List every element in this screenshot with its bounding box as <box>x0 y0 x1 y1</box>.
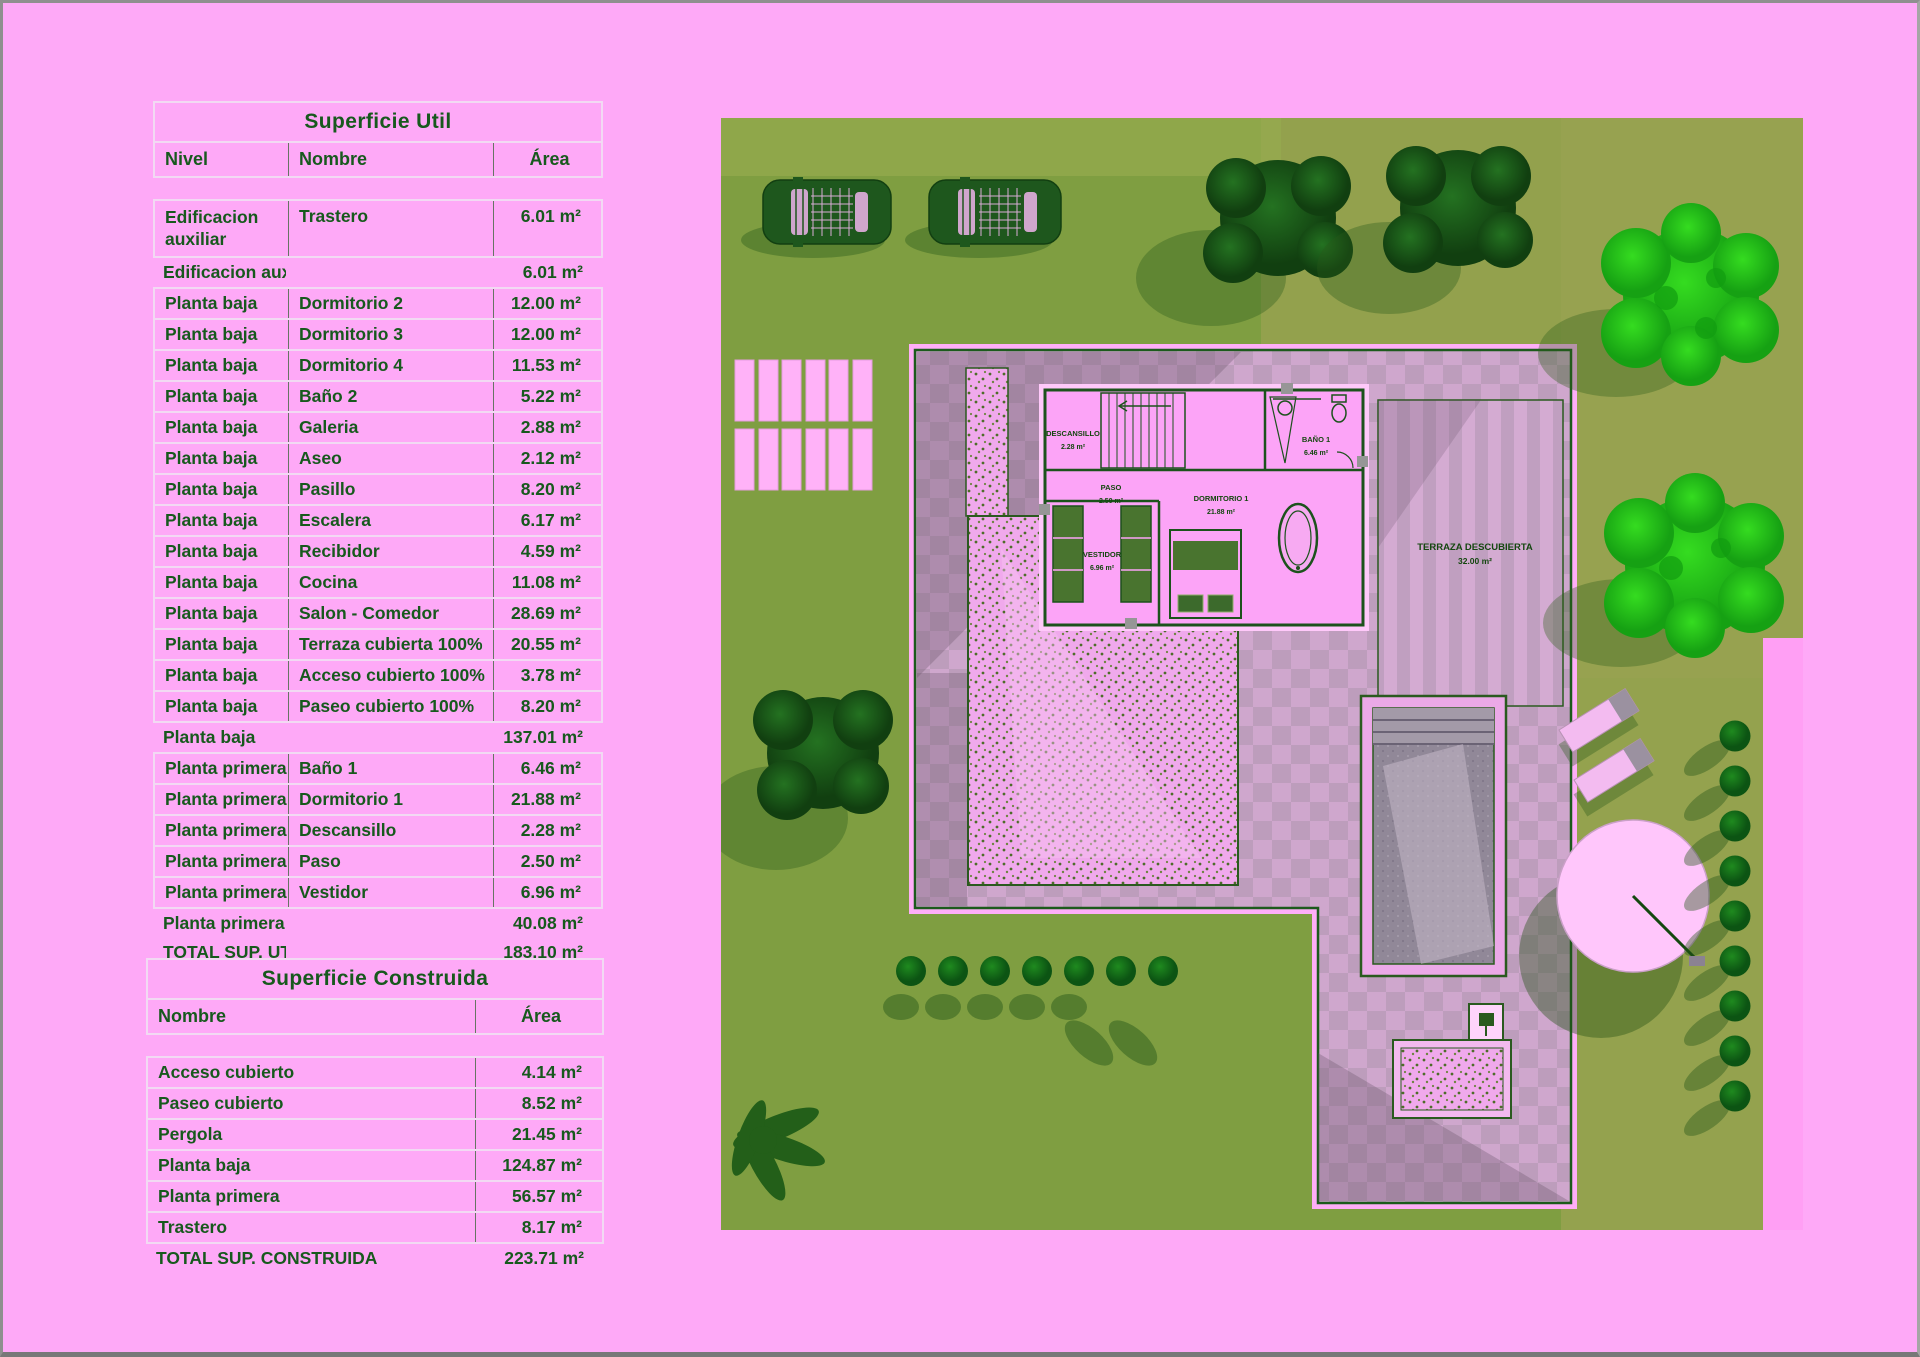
superficie-construida-title: Superficie Construida <box>146 958 604 1000</box>
room-area-descansillo: 2.28 m² <box>1061 444 1086 451</box>
superficie_util-row: Planta bajaTerraza cubierta 100%20.55 m² <box>155 628 601 659</box>
superficie_construida-row: Pergola21.45 m² <box>148 1118 602 1149</box>
cell-area: 12.00 m² <box>493 320 601 349</box>
cell-nivel: Planta baja <box>155 475 288 504</box>
room-area-dormitorio-1: 21.88 m² <box>1207 509 1236 516</box>
cell-area: 20.55 m² <box>493 630 601 659</box>
car-2 <box>929 177 1061 247</box>
col-header-nivel: Nivel <box>155 149 288 170</box>
superficie_construida-row: TOTAL SUP. CONSTRUIDA223.71 m² <box>146 1244 604 1273</box>
cell-nivel: Planta baja <box>155 351 288 380</box>
cell-area: 8.17 m² <box>475 1213 602 1242</box>
cell-nombre: Trastero <box>288 201 493 256</box>
cell-nombre: Acceso cubierto 100% <box>288 661 493 690</box>
cell-nombre: Trastero <box>148 1213 475 1242</box>
cell-area: 6.46 m² <box>493 754 601 783</box>
cell-nivel: Edificacion auxiliar <box>153 258 286 287</box>
cell-nombre: Dormitorio 4 <box>288 351 493 380</box>
superficie_construida-row: Planta baja124.87 m² <box>148 1149 602 1180</box>
cell-area: 8.52 m² <box>475 1089 602 1118</box>
cell-nombre: Planta primera <box>148 1182 475 1211</box>
cell-area: 11.08 m² <box>493 568 601 597</box>
cell-area: 6.96 m² <box>493 878 601 907</box>
cell-area: 3.78 m² <box>493 661 601 690</box>
superficie-util-title: Superficie Util <box>153 101 603 143</box>
cell-nombre: Planta baja <box>148 1151 475 1180</box>
room-area-vestidor: 6.96 m² <box>1090 565 1115 572</box>
cell-nivel: Planta baja <box>155 661 288 690</box>
cell-area: 5.22 m² <box>493 382 601 411</box>
cell-nombre: Paseo cubierto <box>148 1089 475 1118</box>
floor-plan <box>1039 383 1369 631</box>
cell-area: 4.59 m² <box>493 537 601 566</box>
cell-nombre: Pergola <box>148 1120 475 1149</box>
superficie_util-row: Planta bajaAseo2.12 m² <box>155 442 601 473</box>
cell-nivel: Planta baja <box>155 630 288 659</box>
cell-area: 2.12 m² <box>493 444 601 473</box>
superficie-util-header: Nivel Nombre Área <box>153 143 603 178</box>
page: Superficie Util Nivel Nombre Área Edific… <box>0 0 1920 1357</box>
cell-nivel: Planta baja <box>155 320 288 349</box>
superficie_util-row: Planta primeraBaño 16.46 m² <box>155 754 601 783</box>
cell-nivel: Planta baja <box>155 568 288 597</box>
terraza-descubierta <box>1378 400 1563 706</box>
cell-nombre: Dormitorio 3 <box>288 320 493 349</box>
cell-area: 124.87 m² <box>475 1151 602 1180</box>
superficie-construida-body: Acceso cubierto4.14 m²Paseo cubierto8.52… <box>146 1056 604 1273</box>
cell-nombre <box>286 723 490 752</box>
cell-nivel: Planta baja <box>155 413 288 442</box>
cell-area: 2.88 m² <box>493 413 601 442</box>
cell-nombre: Paseo cubierto 100% <box>288 692 493 721</box>
cell-area: 40.08 m² <box>490 909 603 938</box>
superficie-construida-table: Superficie Construida Nombre Área Acceso… <box>146 958 604 1273</box>
site-plan: DESCANSILLO 2.28 m² PASO 2.50 m² DORMITO… <box>721 118 1803 1230</box>
superficie_util-row: Planta primeraPaso2.50 m² <box>155 845 601 876</box>
cell-nombre: Recibidor <box>288 537 493 566</box>
superficie_util-row: Planta bajaDormitorio 212.00 m² <box>155 289 601 318</box>
cell-nombre: Dormitorio 2 <box>288 289 493 318</box>
cell-nombre: Descansillo <box>288 816 493 845</box>
cell-area: 2.50 m² <box>493 847 601 876</box>
superficie_construida-row: Acceso cubierto4.14 m² <box>148 1058 602 1087</box>
superficie_util-row: Planta bajaBaño 25.22 m² <box>155 380 601 411</box>
superficie_util-row: Planta bajaPasillo8.20 m² <box>155 473 601 504</box>
room-area-bano-1: 6.46 m² <box>1304 450 1329 457</box>
cell-nombre: Pasillo <box>288 475 493 504</box>
cell-nombre <box>286 909 490 938</box>
room-area-paso: 2.50 m² <box>1099 498 1124 505</box>
superficie-construida-header: Nombre Área <box>146 1000 604 1035</box>
superficie-util-body: Edificacion auxiliarTrastero6.01 m²Edifi… <box>153 199 603 967</box>
cell-area: 4.14 m² <box>475 1058 602 1087</box>
superficie_util-row: Planta bajaPaseo cubierto 100%8.20 m² <box>155 690 601 721</box>
superficie-util-table: Superficie Util Nivel Nombre Área Edific… <box>153 101 603 967</box>
cell-area: 28.69 m² <box>493 599 601 628</box>
room-label-bano-1: BAÑO 1 <box>1302 435 1330 444</box>
cell-nombre: Cocina <box>288 568 493 597</box>
cell-nombre: Salon - Comedor <box>288 599 493 628</box>
cell-nivel: Planta primera <box>155 785 288 814</box>
cell-area: 8.20 m² <box>493 692 601 721</box>
cell-nombre: Baño 2 <box>288 382 493 411</box>
room-label-vestidor: VESTIDOR <box>1083 550 1122 559</box>
cell-area: 12.00 m² <box>493 289 601 318</box>
cell-nivel: Planta baja <box>155 506 288 535</box>
bathtub <box>1279 504 1317 572</box>
cell-nivel: Planta baja <box>155 444 288 473</box>
superficie_util-row: Planta bajaEscalera6.17 m² <box>155 504 601 535</box>
bed <box>1170 530 1241 618</box>
cell-area: 21.45 m² <box>475 1120 602 1149</box>
cell-area: 6.01 m² <box>490 258 603 287</box>
col-header-nombre: Nombre <box>288 143 493 176</box>
cell-nivel: Planta baja <box>153 723 286 752</box>
cell-nombre: Terraza cubierta 100% <box>288 630 493 659</box>
cell-nivel: Planta primera <box>155 816 288 845</box>
superficie_util-row: Planta primeraDormitorio 121.88 m² <box>155 783 601 814</box>
superficie_util-row: Planta bajaDormitorio 312.00 m² <box>155 318 601 349</box>
col-header-area: Área <box>493 143 601 176</box>
cell-area: 11.53 m² <box>493 351 601 380</box>
superficie_util-row: Planta bajaAcceso cubierto 100%3.78 m² <box>155 659 601 690</box>
cell-nombre <box>286 258 490 287</box>
cell-nivel: Planta baja <box>155 289 288 318</box>
cell-nombre: Baño 1 <box>288 754 493 783</box>
room-label-terraza-descubierta: TERRAZA DESCUBIERTA <box>1417 542 1533 553</box>
superficie_util-row: Planta bajaDormitorio 411.53 m² <box>155 349 601 380</box>
superficie_util-row: Planta bajaGaleria2.88 m² <box>155 411 601 442</box>
room-label-descansillo: DESCANSILLO <box>1046 429 1100 438</box>
room-label-paso: PASO <box>1101 483 1122 492</box>
cell-nivel: Planta primera <box>155 878 288 907</box>
cell-nivel: Planta primera <box>155 847 288 876</box>
cell-area: 2.28 m² <box>493 816 601 845</box>
superficie_util-row: Planta bajaSalon - Comedor28.69 m² <box>155 597 601 628</box>
superficie_util-row: Edificacion auxiliarTrastero6.01 m² <box>155 201 601 256</box>
utility-box <box>1469 1004 1503 1040</box>
cell-nombre: Acceso cubierto <box>148 1058 475 1087</box>
room-label-dormitorio-1: DORMITORIO 1 <box>1194 494 1249 503</box>
cell-nivel: Planta primera <box>155 754 288 783</box>
stairs <box>1101 393 1185 468</box>
swimming-pool <box>1361 696 1506 976</box>
cell-area: 6.17 m² <box>493 506 601 535</box>
cell-nivel: Planta baja <box>155 599 288 628</box>
col-header-area: Área <box>475 1000 602 1033</box>
superficie_util-row: Planta baja137.01 m² <box>153 723 603 752</box>
cell-area: 137.01 m² <box>490 723 603 752</box>
cell-nombre: Paso <box>288 847 493 876</box>
cell-nivel: Planta baja <box>155 537 288 566</box>
cell-area: 6.01 m² <box>493 201 601 256</box>
room-area-terraza-descubierta: 32.00 m² <box>1458 556 1492 566</box>
superficie_construida-row: Trastero8.17 m² <box>148 1211 602 1242</box>
cell-nombre: Aseo <box>288 444 493 473</box>
cell-nombre: Dormitorio 1 <box>288 785 493 814</box>
cell-area: 223.71 m² <box>473 1244 604 1273</box>
superficie_util-row: Planta bajaRecibidor4.59 m² <box>155 535 601 566</box>
cell-area: 56.57 m² <box>475 1182 602 1211</box>
cell-nombre: Galeria <box>288 413 493 442</box>
cell-nombre: Vestidor <box>288 878 493 907</box>
superficie_util-row: Planta primera40.08 m² <box>153 909 603 938</box>
superficie_construida-row: Planta primera56.57 m² <box>148 1180 602 1211</box>
superficie_util-row: Planta primeraVestidor6.96 m² <box>155 876 601 907</box>
cell-nombre: TOTAL SUP. CONSTRUIDA <box>146 1244 473 1273</box>
cell-nivel: Planta primera <box>153 909 286 938</box>
superficie_util-row: Planta bajaCocina11.08 m² <box>155 566 601 597</box>
cell-area: 21.88 m² <box>493 785 601 814</box>
superficie_util-row: Planta primeraDescansillo2.28 m² <box>155 814 601 845</box>
cell-nivel: Edificacion auxiliar <box>155 201 288 256</box>
cell-nivel: Planta baja <box>155 382 288 411</box>
superficie_util-row: Edificacion auxiliar6.01 m² <box>153 258 603 287</box>
gravel-pad <box>1393 1040 1511 1118</box>
cell-nivel: Planta baja <box>155 692 288 721</box>
col-header-nombre: Nombre <box>148 1006 475 1027</box>
car-1 <box>763 177 891 247</box>
cell-nombre: Escalera <box>288 506 493 535</box>
superficie_construida-row: Paseo cubierto8.52 m² <box>148 1087 602 1118</box>
cell-area: 8.20 m² <box>493 475 601 504</box>
